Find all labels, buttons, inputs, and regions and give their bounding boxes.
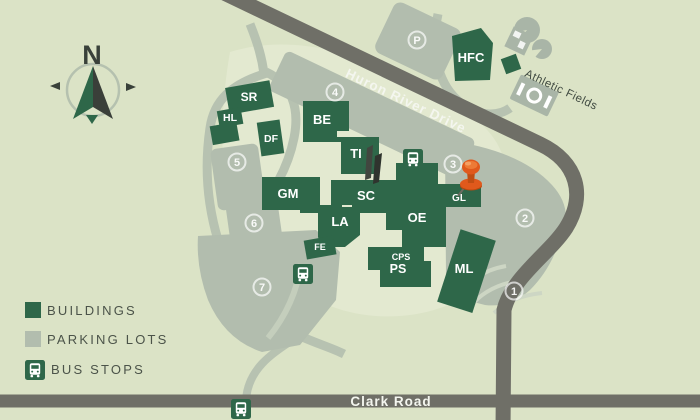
legend-bus-icon <box>25 360 45 380</box>
svg-text:2: 2 <box>522 213 528 225</box>
label-oe: OE <box>408 210 427 225</box>
label-df: DF <box>264 133 279 145</box>
compass-n-label: N <box>82 40 102 70</box>
label-gm: GM <box>278 186 299 201</box>
campus-map-svg: Huron River Drive Clark Road SR HL DF BE… <box>0 0 700 420</box>
bus-stop-icon-central <box>403 149 423 169</box>
label-cps: CPS <box>392 252 411 262</box>
label-ml: ML <box>455 261 474 276</box>
label-la: LA <box>331 214 349 229</box>
svg-text:4: 4 <box>332 87 339 99</box>
legend-parking-swatch <box>25 331 41 347</box>
label-ti: TI <box>350 146 362 161</box>
label-be: BE <box>313 112 331 127</box>
legend-building-swatch <box>25 302 41 318</box>
legend-parking-label: PARKING LOTS <box>47 332 169 347</box>
legend-buildings-label: BUILDINGS <box>47 303 137 318</box>
svg-text:3: 3 <box>450 159 456 171</box>
clark-road-label: Clark Road <box>350 394 431 409</box>
label-hfc: HFC <box>458 50 485 65</box>
legend-bus-label: BUS STOPS <box>51 362 145 377</box>
label-fe: FE <box>314 242 326 252</box>
label-ps: PS <box>390 262 407 276</box>
label-sr: SR <box>241 90 258 104</box>
label-hl: HL <box>223 112 238 124</box>
svg-text:1: 1 <box>511 286 517 298</box>
svg-text:7: 7 <box>259 282 265 294</box>
svg-text:P: P <box>413 35 420 47</box>
bus-stop-icon-clark <box>231 399 251 419</box>
campus-map: Huron River Drive Clark Road SR HL DF BE… <box>0 0 700 420</box>
label-sc: SC <box>357 188 376 203</box>
svg-text:6: 6 <box>251 218 257 230</box>
bus-stop-icon-south <box>293 264 313 284</box>
svg-text:5: 5 <box>234 157 240 169</box>
